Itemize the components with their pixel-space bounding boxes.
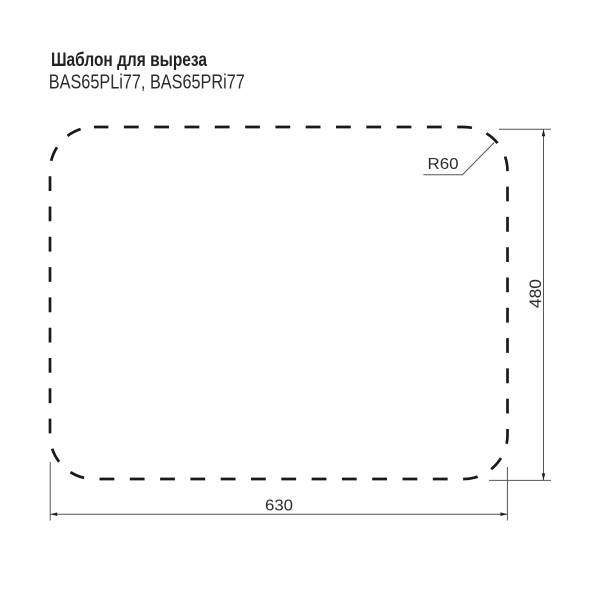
svg-text:BAS65PLi77, BAS65PRi77: BAS65PLi77, BAS65PRi77 [49, 70, 245, 93]
svg-text:480: 480 [526, 279, 545, 308]
svg-text:R60: R60 [428, 156, 459, 173]
svg-text:630: 630 [265, 498, 293, 515]
svg-text:Шаблон для выреза: Шаблон для выреза [51, 50, 207, 71]
